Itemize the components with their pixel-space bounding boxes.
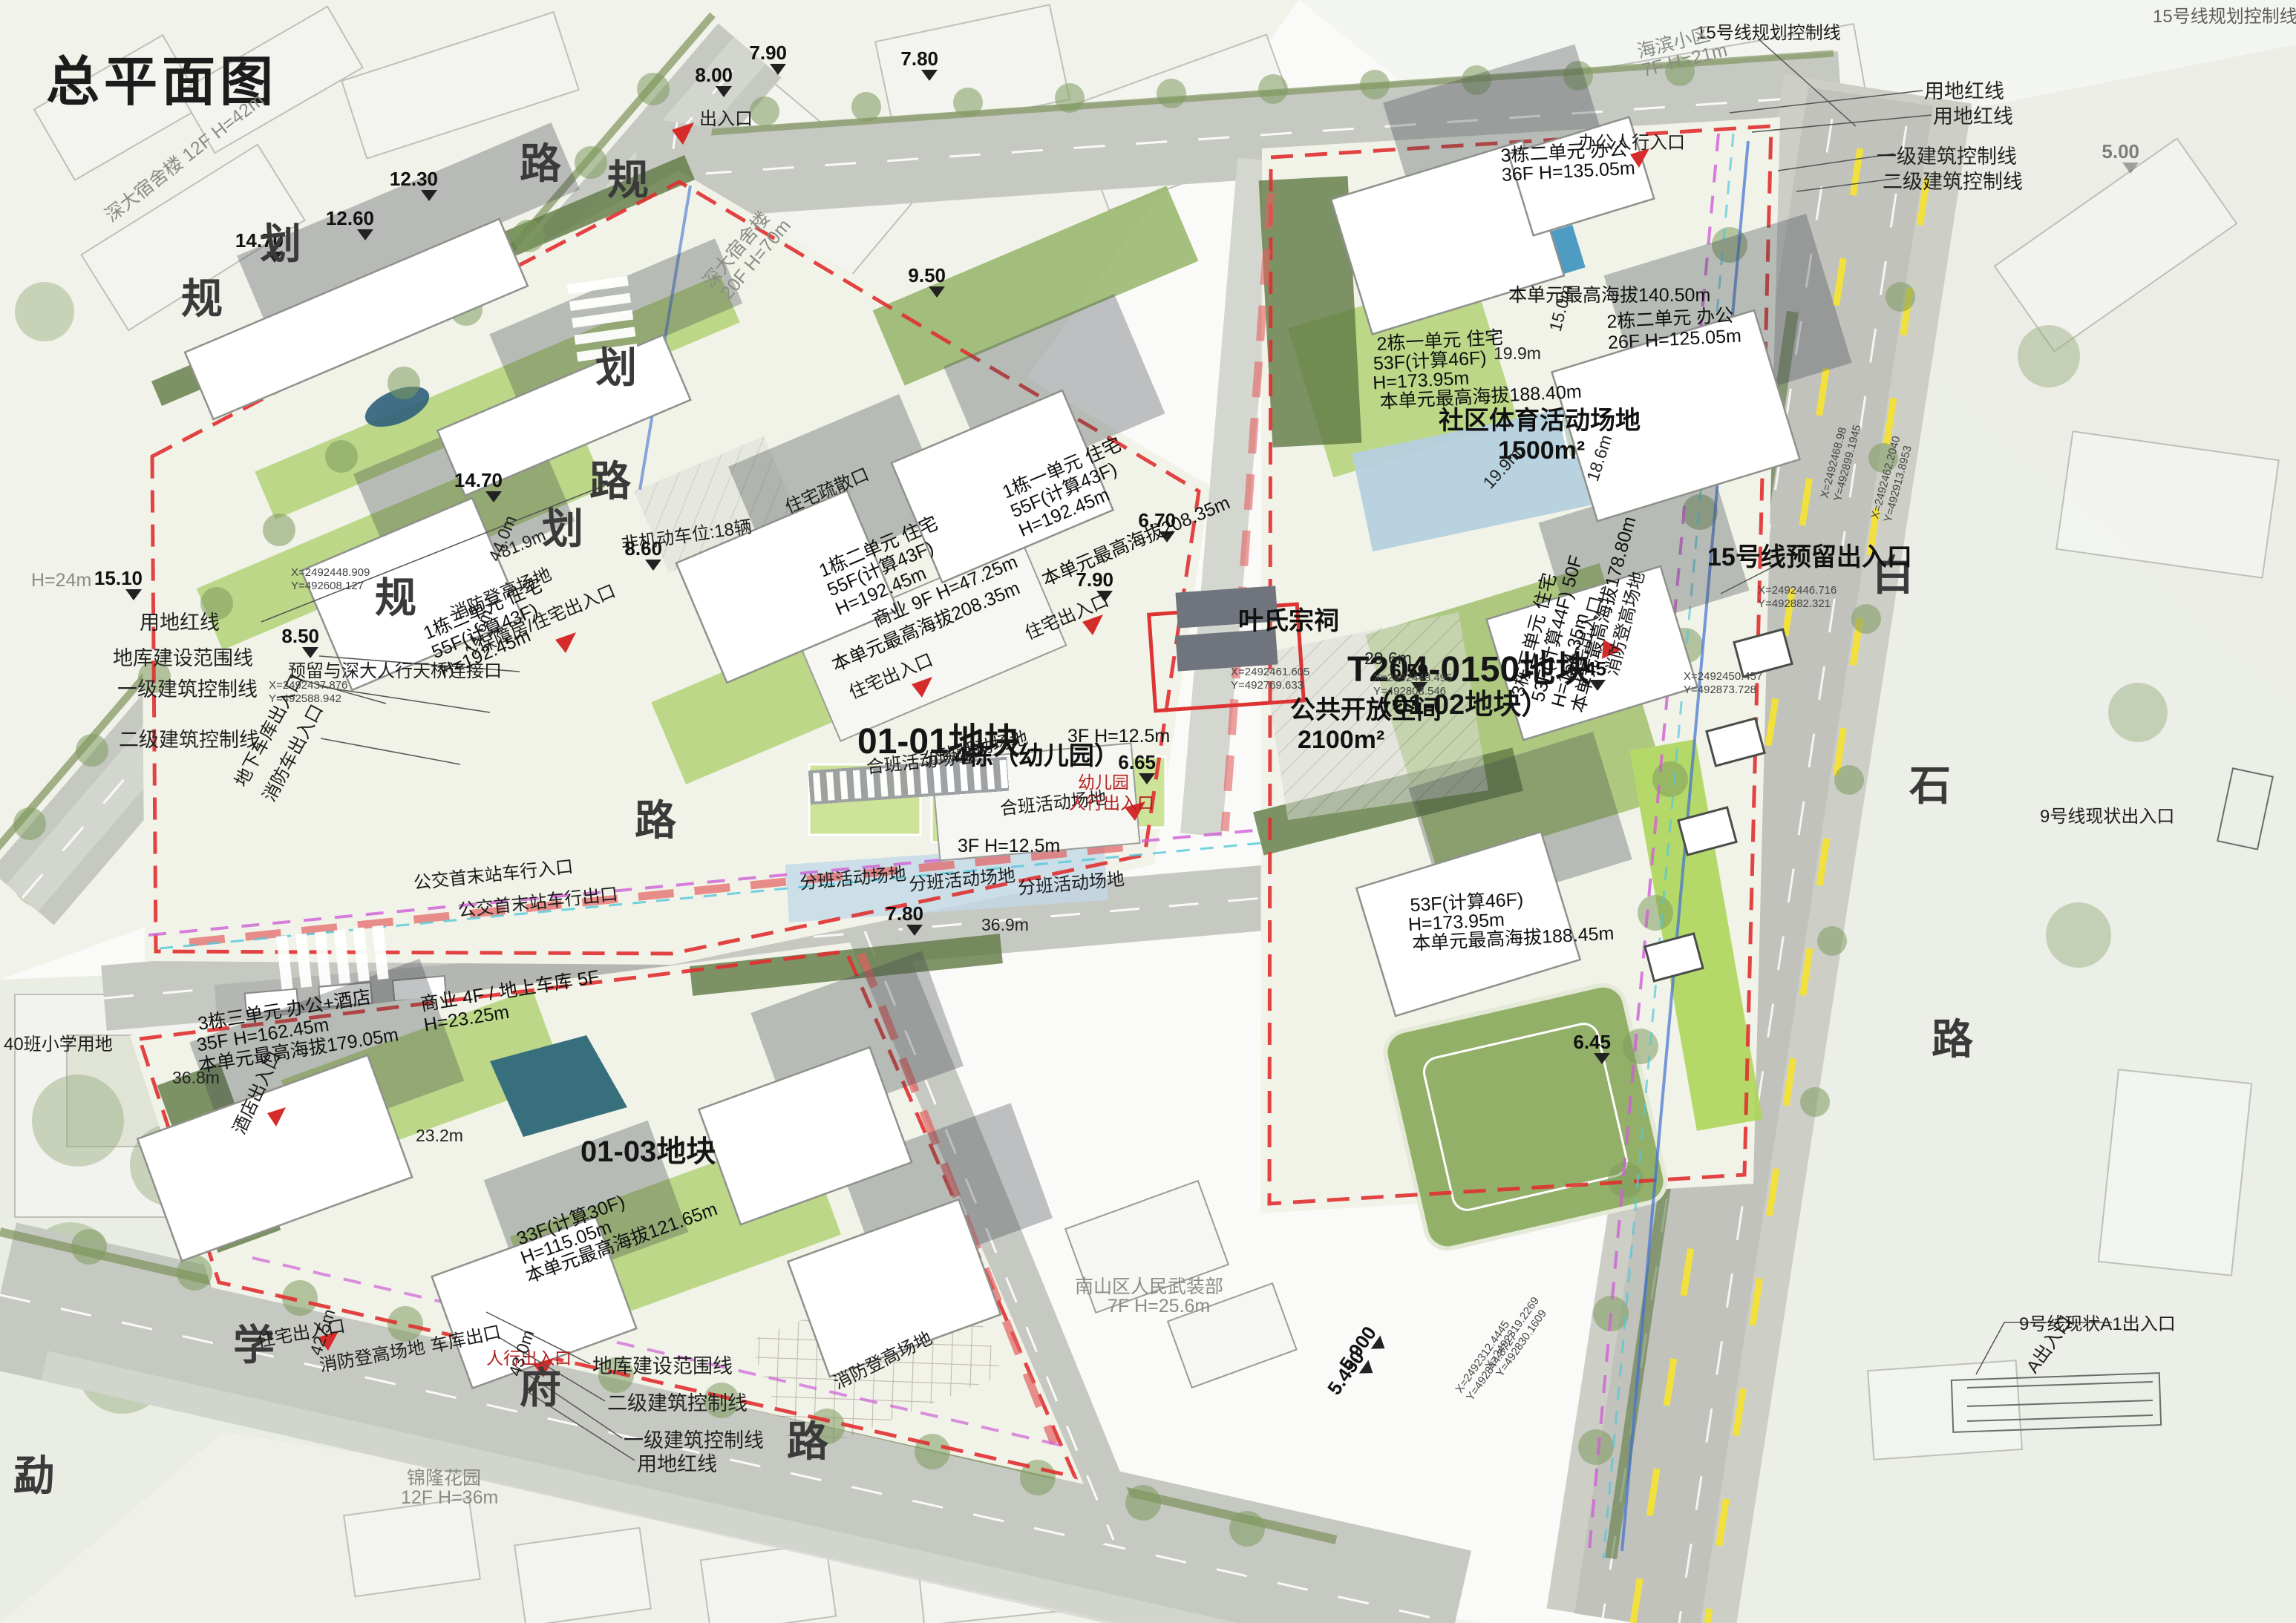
svg-text:6.65: 6.65 (1118, 751, 1156, 773)
road-guihua-int-2: 划 (542, 505, 583, 552)
svg-text:36.8m: 36.8m (172, 1068, 220, 1087)
svg-text:X=2492448.909: X=2492448.909 (291, 566, 370, 579)
svg-text:Y=492803.546: Y=492803.546 (1373, 685, 1446, 698)
svg-text:7.80: 7.80 (886, 902, 923, 925)
road-guihua-c-3: 路 (589, 458, 632, 505)
svg-text:Y=492882.321: Y=492882.321 (1758, 597, 1831, 610)
svg-text:7.80: 7.80 (900, 47, 938, 70)
svg-text:7F H=25.6m: 7F H=25.6m (1108, 1296, 1210, 1317)
tr-erji-line: 二级建筑控制线 (1883, 171, 2023, 193)
svg-text:X=2492448.495: X=2492448.495 (1373, 672, 1452, 684)
br-diku-line: 地库建设范围线 (592, 1355, 733, 1377)
svg-text:出入口: 出入口 (699, 109, 753, 129)
svg-text:8.00: 8.00 (695, 64, 733, 86)
svg-text:H=24m: H=24m (31, 570, 91, 591)
svg-text:29.6m: 29.6m (1364, 649, 1412, 668)
line9-exit-label: 9号线现状出入口 (2040, 807, 2174, 827)
left-yongdi-hongxian: 用地红线 (140, 612, 220, 634)
line15-control-2: 15号线规划控制线 (2153, 7, 2296, 27)
svg-text:X=2492437.876: X=2492437.876 (269, 679, 347, 692)
svg-text:人行出入口: 人行出入口 (1069, 793, 1154, 813)
svg-text:南山区人民武装部: 南山区人民武装部 (1075, 1276, 1223, 1297)
svg-text:3F H=12.5m: 3F H=12.5m (1067, 726, 1170, 747)
site-plan-drawing: 15.10 14.70 12.60 12.30 9.50 8.00 7.90 7… (0, 0, 2296, 1623)
svg-text:Y=492769.633: Y=492769.633 (1231, 679, 1304, 692)
road-guihua-c-1: 规 (607, 157, 649, 203)
svg-text:6.45: 6.45 (1573, 1031, 1611, 1053)
tr-hongxian-2: 用地红线 (1933, 105, 2013, 128)
svg-text:本单元最高海拔140.50m: 本单元最高海拔140.50m (1508, 285, 1710, 306)
svg-text:14.70: 14.70 (454, 469, 503, 491)
road-guihua-nw-1: 规 (181, 275, 223, 322)
svg-text:2100m²: 2100m² (1298, 726, 1384, 754)
svg-text:9.50: 9.50 (908, 264, 946, 286)
svg-text:19.9m: 19.9m (1494, 344, 1541, 363)
svg-text:8.50: 8.50 (281, 625, 319, 647)
road-guihua-int-1: 规 (375, 574, 416, 621)
br-yiji-line: 一级建筑控制线 (624, 1429, 764, 1452)
ancestral-hall-label: 叶氏宗祠 (1238, 606, 1339, 635)
tr-yiji-line: 一级建筑控制线 (1877, 145, 2017, 168)
road-xuefu-2: 府 (520, 1365, 561, 1411)
road-guihua-nw-2: 划 (260, 220, 301, 267)
spot-elevation: 15.10 (94, 567, 143, 589)
tr-hongxian-1: 用地红线 (1924, 80, 2004, 102)
svg-text:12.60: 12.60 (326, 207, 374, 229)
svg-text:X=2492461.605: X=2492461.605 (1231, 666, 1309, 678)
svg-text:12.30: 12.30 (390, 168, 438, 190)
road-partial-char: 勐 (13, 1452, 55, 1499)
svg-text:幼儿园: 幼儿园 (1078, 773, 1129, 792)
svg-text:23.2m: 23.2m (416, 1126, 463, 1145)
svg-text:12F H=36m: 12F H=36m (401, 1487, 498, 1508)
road-guihua-int-3: 路 (635, 797, 677, 844)
plot-01-03-label: 01-03地块 (580, 1135, 716, 1168)
line15-exit-label: 15号线预留出入口 (1707, 543, 1912, 571)
svg-text:5.00: 5.00 (2102, 140, 2139, 163)
svg-text:公共开放空间: 公共开放空间 (1290, 696, 1442, 724)
br-hongxian: 用地红线 (637, 1453, 717, 1475)
line9-a1-exit-label: 9号线现状A1出入口 (2019, 1314, 2176, 1334)
br-erji-line: 二级建筑控制线 (607, 1392, 748, 1414)
skybridge-label: 预留与深大人行天桥连接口 (288, 661, 502, 681)
left-erji-line: 二级建筑控制线 (119, 729, 259, 751)
svg-text:Y=492608.127: Y=492608.127 (291, 580, 364, 592)
road-guihua-nw-3: 路 (520, 140, 562, 187)
svg-text:7.90: 7.90 (749, 42, 787, 64)
road-baishi-3: 路 (1932, 1016, 1974, 1063)
svg-text:X=2492446.716: X=2492446.716 (1758, 584, 1837, 597)
road-guihua-c-2: 划 (595, 344, 637, 391)
svg-text:3F H=12.5m: 3F H=12.5m (958, 836, 1060, 856)
svg-text:X=2492450.457: X=2492450.457 (1684, 670, 1762, 683)
svg-text:36.9m: 36.9m (981, 915, 1029, 934)
svg-text:社区体育活动场地: 社区体育活动场地 (1439, 407, 1641, 435)
svg-text:锦隆花园: 锦隆花园 (407, 1468, 481, 1489)
left-yiji-line: 一级建筑控制线 (117, 678, 258, 701)
master-plan-sheet: 15.10 14.70 12.60 12.30 9.50 8.00 7.90 7… (0, 0, 2296, 1623)
line15-control: 15号线规划控制线 (1696, 23, 1841, 43)
school-site-label: 40班小学用地 (4, 1035, 113, 1055)
left-diku-line: 地库建设范围线 (113, 647, 253, 669)
road-baishi-2: 石 (1909, 762, 1951, 809)
road-xuefu-3: 路 (787, 1418, 829, 1465)
svg-text:办公人行入口: 办公人行入口 (1578, 133, 1685, 153)
svg-text:Y=492588.942: Y=492588.942 (269, 692, 341, 705)
svg-text:Y=492873.728: Y=492873.728 (1684, 683, 1756, 696)
